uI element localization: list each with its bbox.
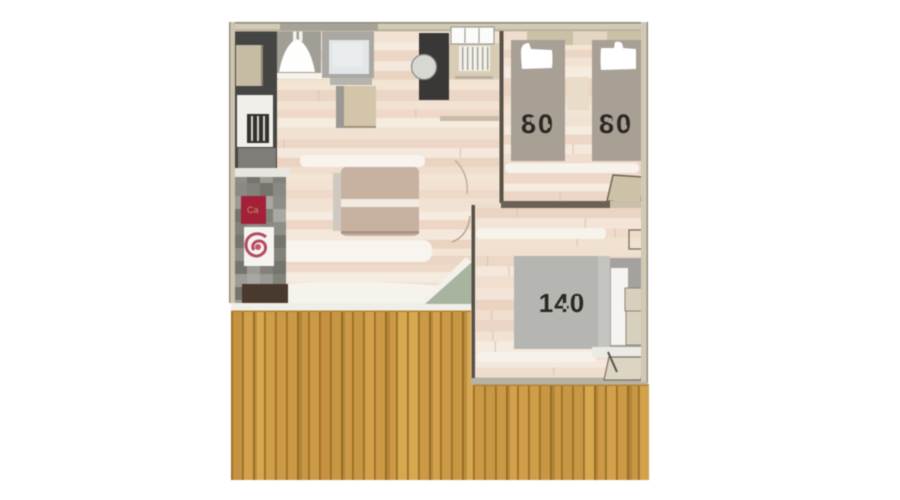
svg-text:80: 80 xyxy=(599,109,633,139)
svg-text:Ca: Ca xyxy=(247,205,259,215)
